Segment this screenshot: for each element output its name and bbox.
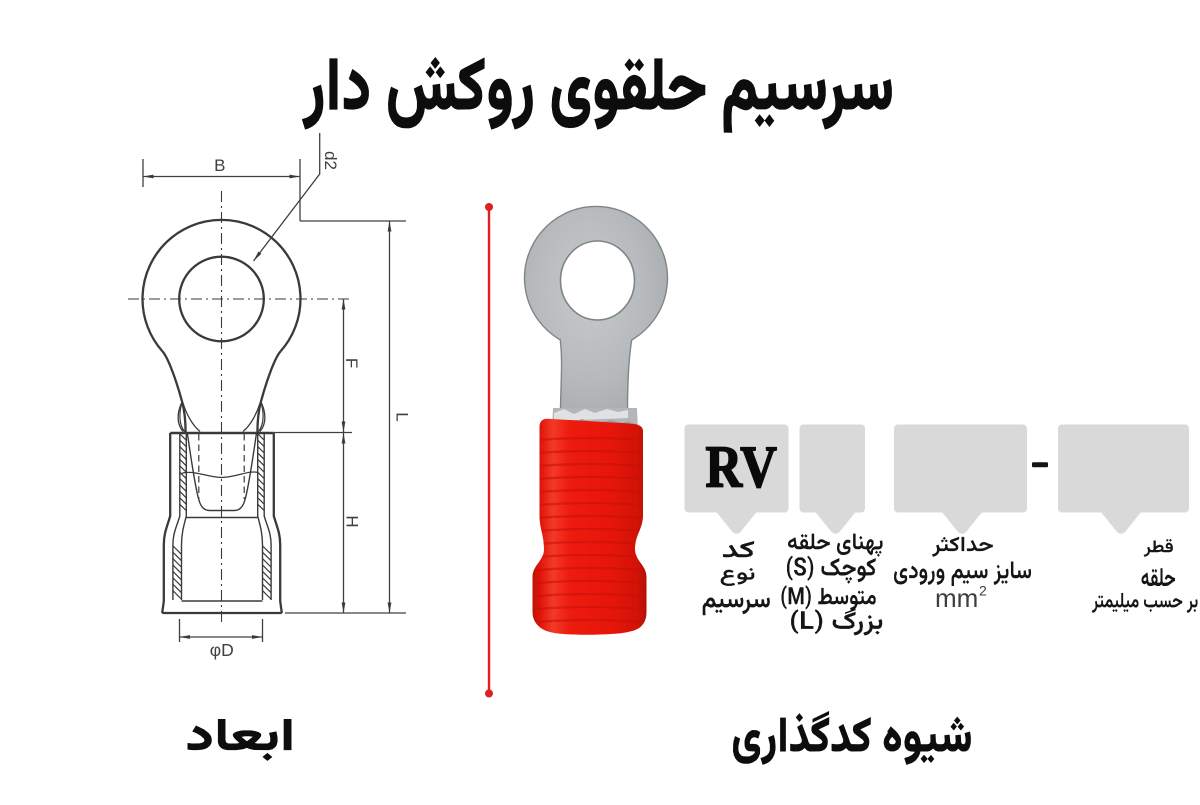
svg-text:L: L bbox=[393, 412, 412, 421]
svg-text:2: 2 bbox=[979, 583, 987, 599]
svg-text:F: F bbox=[342, 358, 361, 368]
svg-text:RV: RV bbox=[705, 434, 777, 500]
svg-text:d2: d2 bbox=[321, 151, 340, 170]
svg-text:H: H bbox=[343, 515, 362, 527]
svg-text:mm: mm bbox=[935, 583, 978, 613]
svg-text:B: B bbox=[214, 156, 225, 175]
svg-text:φD: φD bbox=[210, 640, 234, 660]
